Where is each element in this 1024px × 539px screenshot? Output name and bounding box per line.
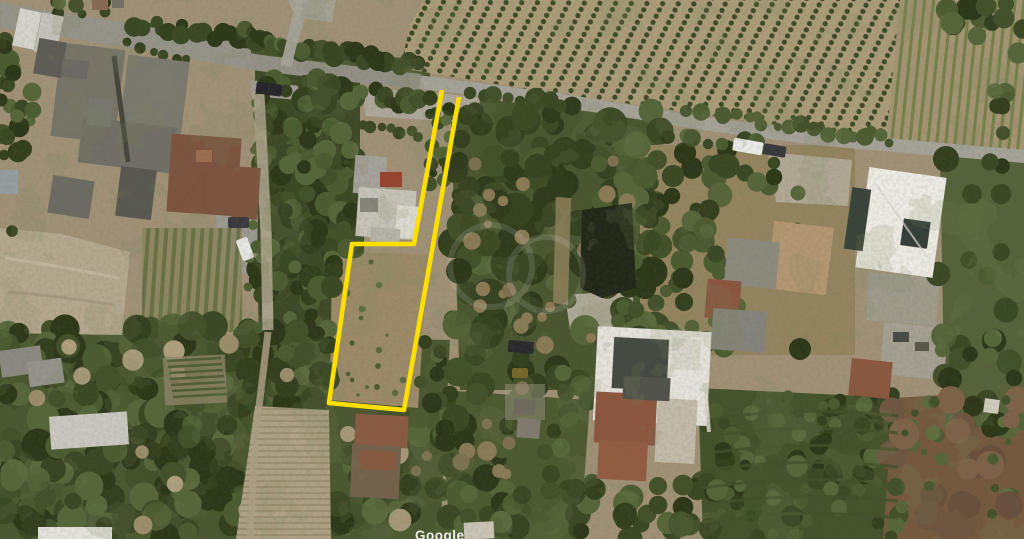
svg-text:Google: Google bbox=[415, 528, 465, 539]
